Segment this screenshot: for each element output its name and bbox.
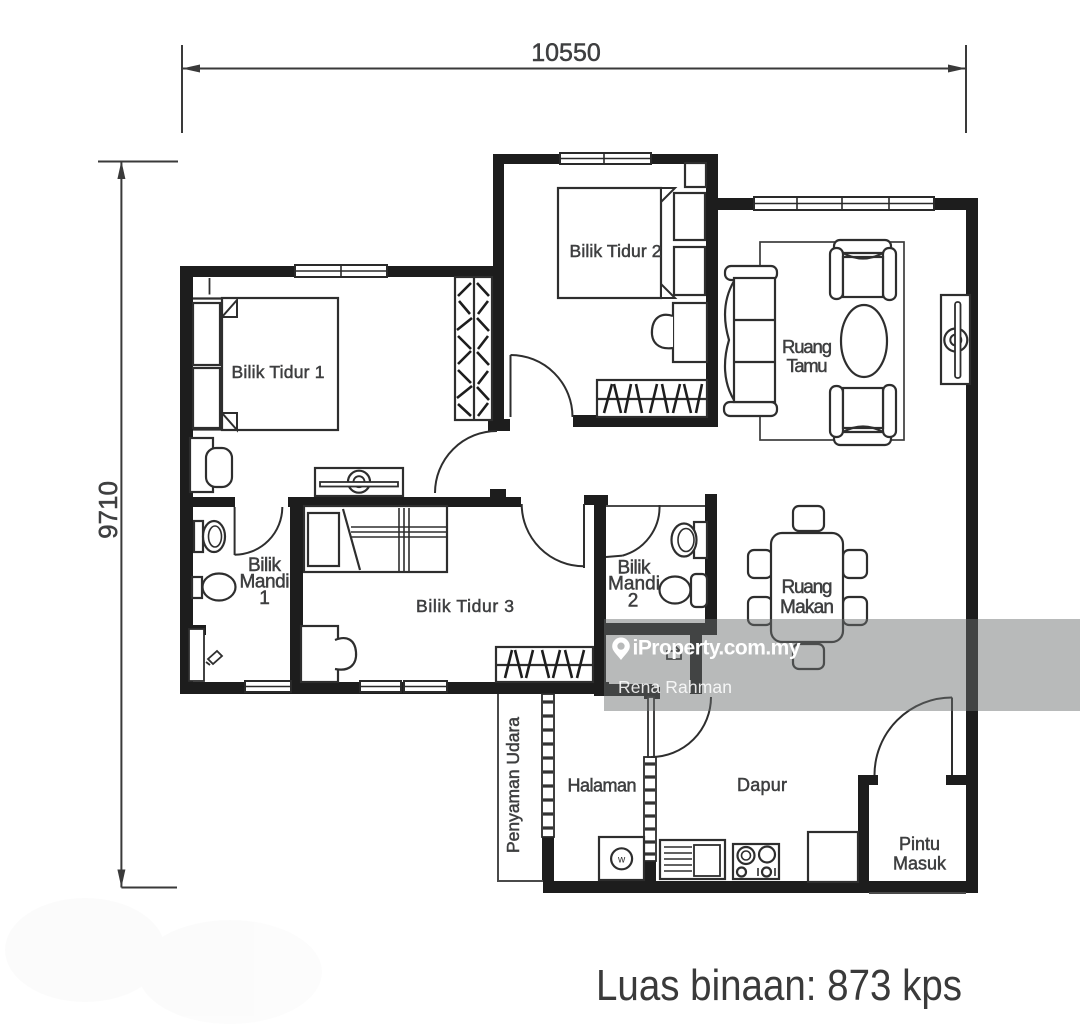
svg-text:Halaman: Halaman xyxy=(568,776,637,796)
svg-text:9710: 9710 xyxy=(93,481,123,539)
svg-text:Bilik Tidur 1: Bilik Tidur 1 xyxy=(232,362,325,382)
svg-text:2: 2 xyxy=(628,590,639,611)
svg-text:Masuk: Masuk xyxy=(893,854,947,874)
svg-text:Rena Rahman: Rena Rahman xyxy=(618,677,732,697)
svg-text:Dapur: Dapur xyxy=(737,775,787,795)
svg-text:Tamu: Tamu xyxy=(787,355,828,376)
svg-text:Luas binaan: 873 kps: Luas binaan: 873 kps xyxy=(596,961,962,1010)
svg-text:Pintu: Pintu xyxy=(899,834,940,854)
svg-text:Bilik Tidur 3: Bilik Tidur 3 xyxy=(416,596,514,616)
svg-text:w: w xyxy=(617,855,626,866)
svg-text:Makan: Makan xyxy=(780,597,834,618)
svg-text:Bilik Tidur 2: Bilik Tidur 2 xyxy=(570,241,662,261)
svg-text:1: 1 xyxy=(259,588,270,609)
svg-text:Ruang: Ruang xyxy=(782,336,832,357)
svg-text:Ruang: Ruang xyxy=(782,577,833,598)
svg-text:10550: 10550 xyxy=(531,39,601,67)
svg-text:Penyaman Udara: Penyaman Udara xyxy=(503,717,523,853)
svg-text:iProperty.com.my: iProperty.com.my xyxy=(633,637,801,660)
